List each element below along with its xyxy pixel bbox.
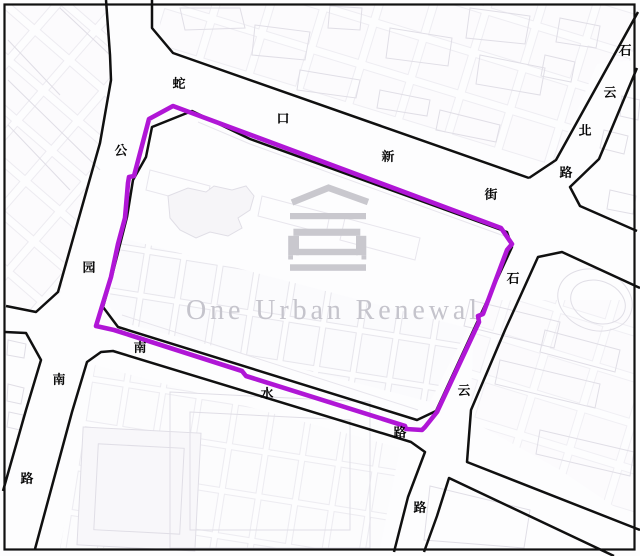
svg-text:One Urban Renewal: One Urban Renewal xyxy=(186,295,481,326)
